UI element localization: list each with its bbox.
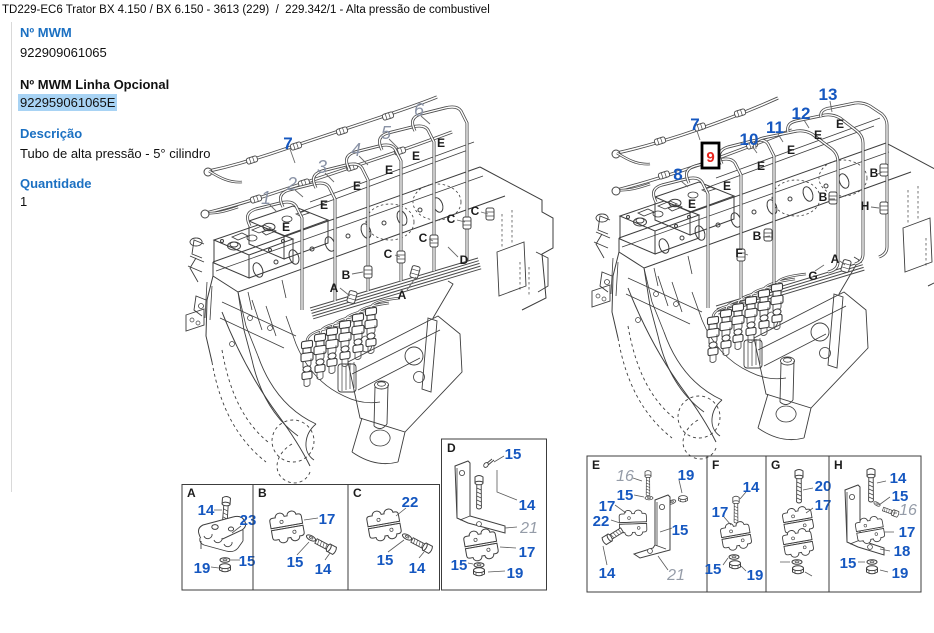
svg-text:B: B [342, 268, 351, 282]
svg-text:E: E [320, 198, 328, 212]
svg-text:21: 21 [666, 567, 685, 584]
svg-text:B: B [819, 190, 828, 204]
svg-text:1: 1 [261, 188, 271, 208]
svg-text:C: C [471, 204, 480, 218]
svg-text:15: 15 [617, 487, 634, 504]
svg-text:E: E [353, 179, 361, 193]
svg-text:17: 17 [712, 504, 729, 521]
svg-text:2: 2 [286, 174, 297, 194]
svg-text:E: E [688, 197, 696, 211]
svg-text:G: G [771, 458, 780, 472]
svg-text:3: 3 [317, 157, 327, 177]
svg-text:13: 13 [819, 85, 838, 104]
svg-text:E: E [836, 117, 844, 131]
svg-text:7: 7 [690, 115, 699, 134]
svg-text:7: 7 [283, 134, 292, 153]
svg-text:C: C [384, 247, 393, 261]
svg-text:D: D [460, 253, 469, 267]
svg-text:15: 15 [505, 446, 522, 463]
svg-text:14: 14 [198, 502, 215, 519]
svg-text:14: 14 [599, 565, 616, 582]
svg-text:16: 16 [899, 502, 917, 519]
svg-text:E: E [592, 458, 600, 472]
svg-text:E: E [787, 143, 795, 157]
svg-text:19: 19 [678, 467, 695, 484]
svg-text:14: 14 [890, 470, 907, 487]
svg-text:15: 15 [377, 552, 394, 569]
svg-text:22: 22 [402, 494, 419, 511]
svg-text:E: E [814, 128, 822, 142]
svg-text:19: 19 [892, 565, 909, 582]
svg-text:16: 16 [616, 468, 634, 485]
svg-text:14: 14 [315, 561, 332, 578]
svg-text:15: 15 [840, 555, 857, 572]
svg-text:4: 4 [351, 140, 361, 160]
svg-text:E: E [723, 179, 731, 193]
svg-text:11: 11 [766, 118, 784, 137]
svg-text:E: E [282, 220, 290, 234]
svg-text:18: 18 [894, 543, 911, 560]
svg-text:9: 9 [706, 149, 714, 166]
svg-text:19: 19 [194, 560, 211, 577]
svg-text:21: 21 [519, 520, 538, 537]
svg-text:B: B [753, 229, 762, 243]
svg-text:F: F [712, 458, 719, 472]
svg-text:10: 10 [740, 130, 759, 149]
svg-text:15: 15 [451, 557, 468, 574]
svg-text:12: 12 [792, 104, 811, 123]
svg-text:E: E [757, 159, 765, 173]
svg-text:19: 19 [507, 565, 524, 582]
svg-text:17: 17 [899, 524, 916, 541]
svg-text:E: E [385, 163, 393, 177]
svg-text:17: 17 [519, 544, 536, 561]
svg-text:E: E [412, 149, 420, 163]
svg-text:B: B [870, 166, 879, 180]
svg-text:D: D [447, 441, 456, 455]
svg-text:15: 15 [287, 554, 304, 571]
svg-text:F: F [735, 246, 742, 260]
svg-text:19: 19 [747, 567, 764, 584]
svg-text:22: 22 [593, 513, 610, 530]
svg-text:14: 14 [519, 497, 536, 514]
svg-text:15: 15 [705, 561, 722, 578]
svg-text:H: H [834, 458, 843, 472]
svg-text:H: H [861, 199, 870, 213]
svg-text:A: A [187, 486, 196, 500]
svg-text:C: C [447, 212, 456, 226]
svg-text:G: G [808, 269, 817, 283]
svg-text:A: A [831, 252, 840, 266]
svg-text:14: 14 [743, 479, 760, 496]
svg-text:A: A [398, 288, 407, 302]
svg-text:6: 6 [414, 100, 425, 120]
svg-text:14: 14 [409, 560, 426, 577]
svg-text:8: 8 [673, 165, 682, 184]
svg-text:23: 23 [240, 512, 257, 529]
svg-text:C: C [353, 486, 362, 500]
svg-text:15: 15 [672, 522, 689, 539]
svg-text:B: B [258, 486, 267, 500]
svg-text:5: 5 [381, 123, 392, 143]
svg-text:C: C [419, 231, 428, 245]
svg-text:E: E [437, 136, 445, 150]
svg-text:A: A [330, 281, 339, 295]
svg-text:17: 17 [319, 511, 336, 528]
